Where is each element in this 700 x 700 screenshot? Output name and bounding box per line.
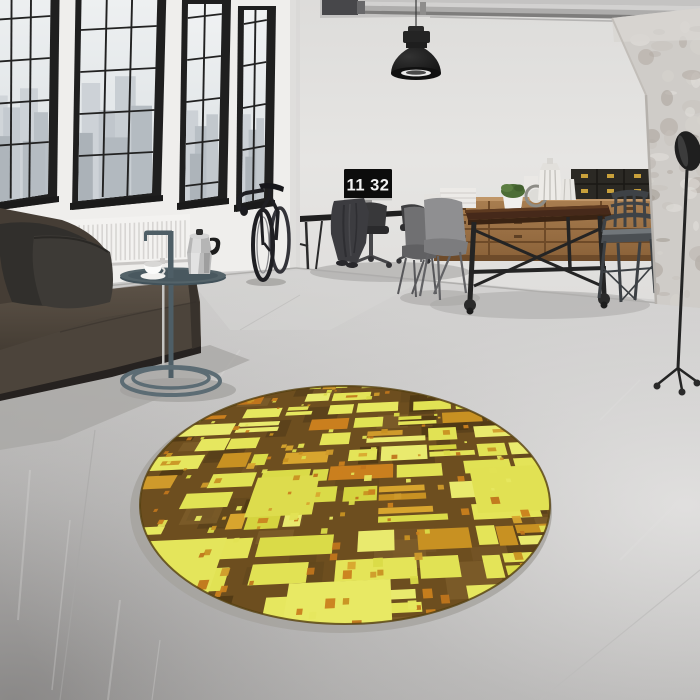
svg-text:11 32: 11 32: [347, 177, 390, 195]
